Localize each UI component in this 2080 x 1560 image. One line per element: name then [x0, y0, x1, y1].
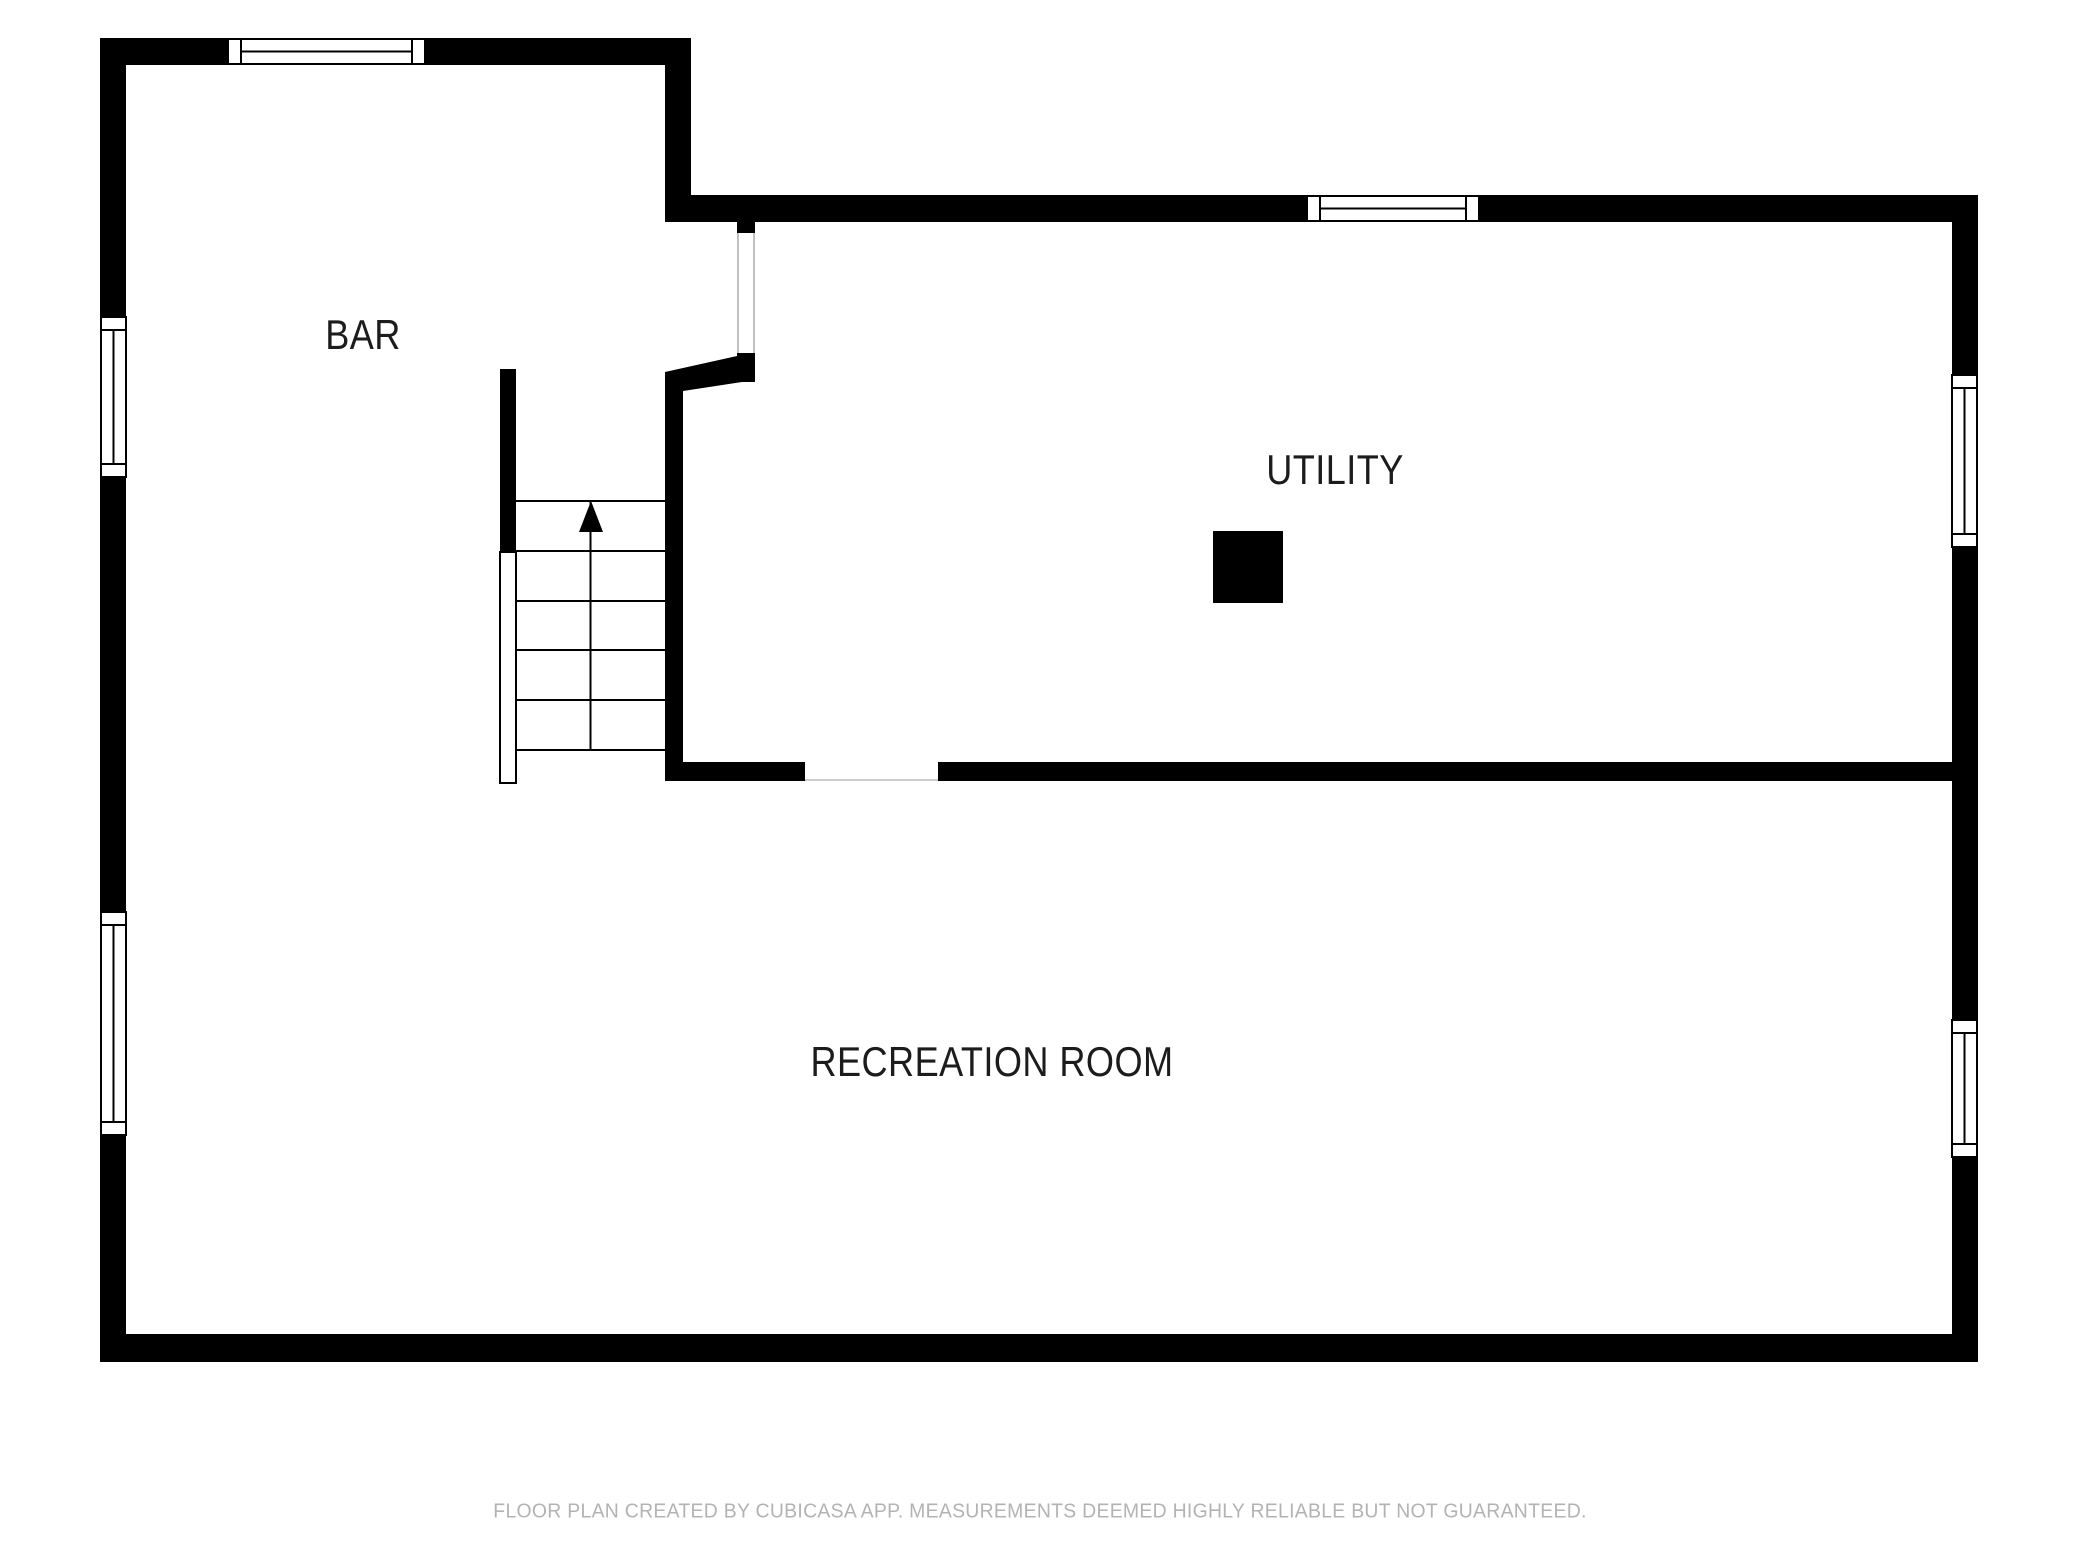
room-label-recreation-room: RECREATION ROOM — [811, 1038, 1174, 1086]
wall-bar-right — [665, 38, 691, 222]
wall-door-stub-top — [737, 222, 755, 233]
wall-utility-bottom-left — [665, 762, 805, 781]
window-top-utility — [1307, 196, 1479, 221]
stair-rail-outline — [500, 552, 516, 783]
staircase — [500, 501, 665, 783]
exterior-walls — [100, 38, 1978, 1362]
stair-treads — [516, 501, 665, 750]
window-left-upper — [101, 317, 126, 477]
door-openings — [736, 233, 938, 780]
window-right-lower — [1952, 1020, 1977, 1157]
window-right-upper — [1952, 375, 1977, 547]
room-label-bar: BAR — [325, 311, 401, 359]
floor-plan-drawing — [0, 0, 2080, 1560]
stairs-up-arrow-icon — [579, 501, 603, 532]
floor-plan-page: BAR UTILITY RECREATION ROOM FLOOR PLAN C… — [0, 0, 2080, 1560]
window-left-lower — [101, 912, 126, 1135]
wall-stair-left — [500, 369, 516, 552]
footer-disclaimer: FLOOR PLAN CREATED BY CUBICASA APP. MEAS… — [493, 1501, 1586, 1524]
room-label-utility: UTILITY — [1266, 446, 1403, 494]
wall-stair-right — [665, 372, 683, 781]
wall-bottom — [100, 1334, 1978, 1362]
door-opening-bar-utility — [736, 233, 756, 353]
wall-left — [100, 38, 126, 1362]
furnace-square — [1213, 531, 1283, 603]
interior-walls — [500, 222, 1978, 781]
wall-utility-bottom-right — [938, 762, 1978, 781]
window-top-bar — [228, 39, 425, 64]
